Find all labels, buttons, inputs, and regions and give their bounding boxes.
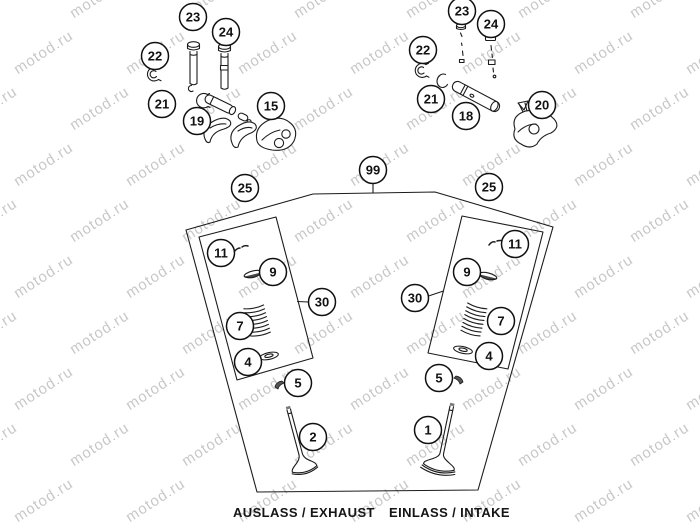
callout-kit-25-right: 25 — [476, 174, 503, 201]
callout-number: 21 — [424, 92, 438, 107]
callout-number: 24 — [219, 25, 234, 40]
callout-number: 99 — [366, 163, 380, 178]
callout-number: 1 — [424, 423, 431, 438]
callout-left-keeper-5: 5 — [285, 370, 312, 397]
exhaust-rocker-drawing — [231, 118, 296, 150]
callout-right-retainer-9: 9 — [454, 259, 481, 286]
exhaust-valve-seal-drawing — [188, 42, 200, 85]
callout-number: 5 — [294, 376, 301, 391]
callout-left-keepers-11: 11 — [208, 240, 235, 267]
callout-exhaust-rocker-15: 15 — [258, 93, 285, 120]
parts-diagram-page: motod.rumotod.rumotod.rumotod.rumotod.ru… — [0, 0, 700, 525]
callout-number: 11 — [214, 246, 228, 261]
intake-valve-seal-drawing — [457, 23, 466, 62]
callout-intake-cap-22: 22 — [410, 37, 437, 64]
callout-intake-guide-24: 24 — [478, 11, 505, 38]
callout-exhaust-seal-23: 23 — [180, 4, 207, 31]
callout-number: 23 — [455, 4, 469, 19]
callout-number: 25 — [482, 180, 496, 195]
intake-label: EINLASS / INTAKE — [389, 505, 510, 520]
right-keeper-drawing — [454, 376, 463, 384]
callout-right-spring-7: 7 — [488, 308, 515, 335]
callout-number: 30 — [315, 295, 329, 310]
callout-exhaust-cap-22: 22 — [142, 43, 169, 70]
callout-number: 20 — [535, 98, 549, 113]
leader-30-left — [298, 302, 309, 303]
callout-number: 4 — [244, 355, 252, 370]
callout-number: 7 — [497, 314, 504, 329]
callout-number: 24 — [484, 17, 499, 32]
callout-left-seat-4: 4 — [235, 349, 262, 376]
callout-number: 19 — [190, 114, 204, 129]
callout-exhaust-pin-21: 21 — [149, 91, 176, 118]
exploded-parts-diagram: 2324222119152324222118209925251197430119… — [0, 0, 700, 525]
leader-30-right — [429, 291, 444, 296]
callout-number: 9 — [463, 265, 470, 280]
callout-number: 22 — [416, 43, 430, 58]
callout-left-kit-30: 30 — [309, 289, 336, 316]
callout-left-retainer-9: 9 — [260, 259, 287, 286]
callout-exhaust-valve-2: 2 — [300, 424, 327, 451]
callout-number: 23 — [186, 10, 200, 25]
callout-intake-rocker-20: 20 — [529, 92, 556, 119]
exhaust-pin-drawing — [204, 94, 237, 116]
callout-number: 9 — [269, 265, 276, 280]
callout-right-keeper-5: 5 — [426, 365, 453, 392]
exhaust-label: AUSLASS / EXHAUST — [233, 505, 375, 520]
callout-intake-seal-23: 23 — [449, 0, 476, 25]
callout-number: 2 — [309, 430, 316, 445]
callout-intake-valve-1: 1 — [415, 417, 442, 444]
callout-number: 25 — [238, 181, 252, 196]
callout-kit-25-left: 25 — [232, 175, 259, 202]
exhaust-clip-drawing — [188, 85, 193, 91]
left-keeper-drawing — [275, 381, 284, 389]
callout-number: 30 — [408, 291, 422, 306]
callout-assembly-99: 99 — [360, 157, 387, 184]
intake-valve-guide-drawing — [486, 33, 496, 78]
right-retainer-drawing — [478, 271, 497, 282]
callout-right-kit-30: 30 — [402, 285, 429, 312]
callout-exhaust-guide-24: 24 — [213, 19, 240, 46]
right-seat-drawing — [453, 345, 473, 356]
callout-number: 15 — [264, 99, 278, 114]
exhaust-valve-guide-drawing — [219, 44, 231, 90]
head-outline — [186, 192, 553, 492]
callout-right-keepers-11: 11 — [502, 231, 529, 258]
left-keepers-drawing — [234, 246, 248, 252]
callout-intake-clip-21: 21 — [418, 86, 445, 113]
callout-number: 21 — [155, 97, 169, 112]
callout-number: 4 — [485, 349, 493, 364]
callout-number: 11 — [508, 237, 522, 252]
callout-left-spring-7: 7 — [227, 313, 254, 340]
right-spring-drawing — [460, 303, 487, 337]
callout-exhaust-lever-19: 19 — [184, 108, 211, 135]
callout-number: 22 — [148, 49, 162, 64]
callout-number: 7 — [236, 319, 243, 334]
intake-circlip-drawing — [437, 74, 447, 87]
intake-cap-drawing — [415, 63, 429, 77]
callout-intake-shaft-18: 18 — [453, 103, 480, 130]
callout-number: 18 — [459, 109, 473, 124]
callout-right-seat-4: 4 — [476, 343, 503, 370]
callout-number: 5 — [435, 371, 442, 386]
